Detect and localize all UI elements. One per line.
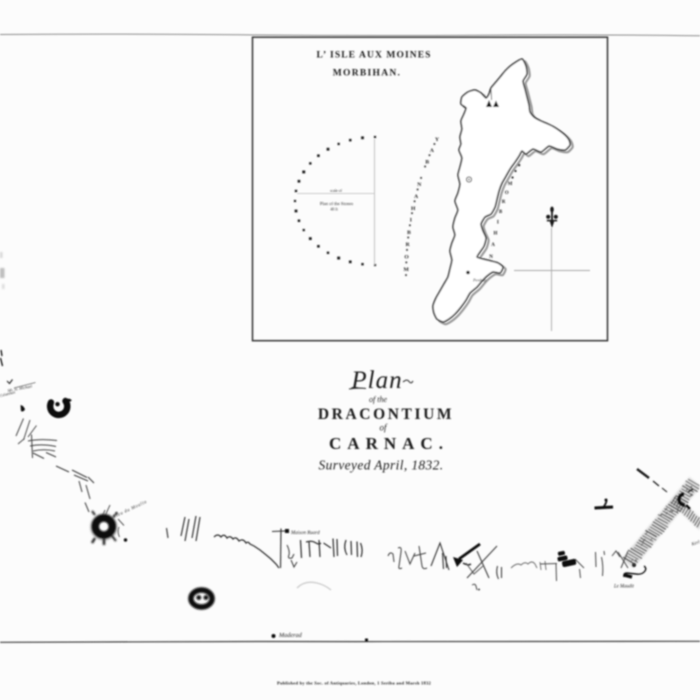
svg-text:R: R (502, 200, 506, 205)
svg-text:DRACONTIUM: DRACONTIUM (318, 406, 454, 423)
svg-text:O: O (505, 191, 509, 196)
svg-text:A: A (491, 243, 495, 248)
svg-text:A: A (430, 148, 434, 154)
svg-text:Published by the Soc. of Antiq: Published by the Soc. of Antiquaries, Lo… (277, 681, 431, 686)
svg-text:I: I (497, 221, 499, 226)
svg-text:B: B (407, 230, 411, 236)
svg-text:Maderad: Maderad (278, 632, 303, 639)
svg-text:Plan of the Stones: Plan of the Stones (320, 201, 354, 206)
svg-text:L’ ISLE AUX MOINES: L’ ISLE AUX MOINES (316, 51, 431, 61)
svg-text:Maison Ruard: Maison Ruard (290, 531, 320, 536)
svg-text:Penhap: Penhap (472, 278, 487, 283)
svg-text:40 ft: 40 ft (330, 207, 338, 212)
svg-text:Le Maudit: Le Maudit (613, 585, 635, 590)
svg-text:O: O (404, 255, 409, 261)
svg-text:H: H (493, 232, 497, 237)
svg-text:H: H (411, 206, 416, 212)
svg-text:Surveyed April, 1832.: Surveyed April, 1832. (319, 458, 444, 473)
svg-text:B: B (425, 159, 429, 165)
svg-text:N: N (489, 255, 493, 260)
svg-text:Y: Y (435, 137, 439, 143)
svg-text:N: N (417, 182, 421, 188)
svg-text:MORBIHAN.: MORBIHAN. (333, 69, 401, 79)
svg-text:M: M (508, 182, 513, 187)
svg-text:CARNAC.: CARNAC. (329, 434, 449, 453)
svg-text:scale of: scale of (330, 189, 342, 193)
svg-text:M: M (403, 267, 409, 273)
svg-text:of the: of the (369, 395, 387, 404)
svg-text:Plan: Plan (350, 367, 402, 394)
svg-text:A: A (414, 194, 418, 200)
svg-text:I: I (410, 218, 412, 224)
